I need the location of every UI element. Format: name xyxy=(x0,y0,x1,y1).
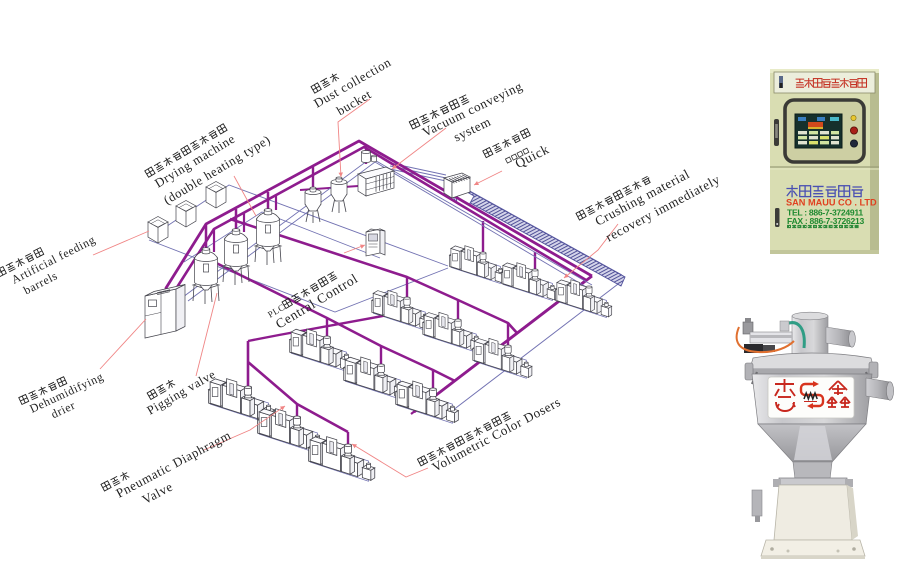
svg-text:Quick: Quick xyxy=(513,141,552,171)
svg-text:SAN MAUU CO . LTD: SAN MAUU CO . LTD xyxy=(786,198,877,208)
svg-text:Volumetric Color Dosers: Volumetric Color Dosers xyxy=(429,394,563,475)
svg-text:FAX : 886-7-3726213: FAX : 886-7-3726213 xyxy=(787,216,864,226)
